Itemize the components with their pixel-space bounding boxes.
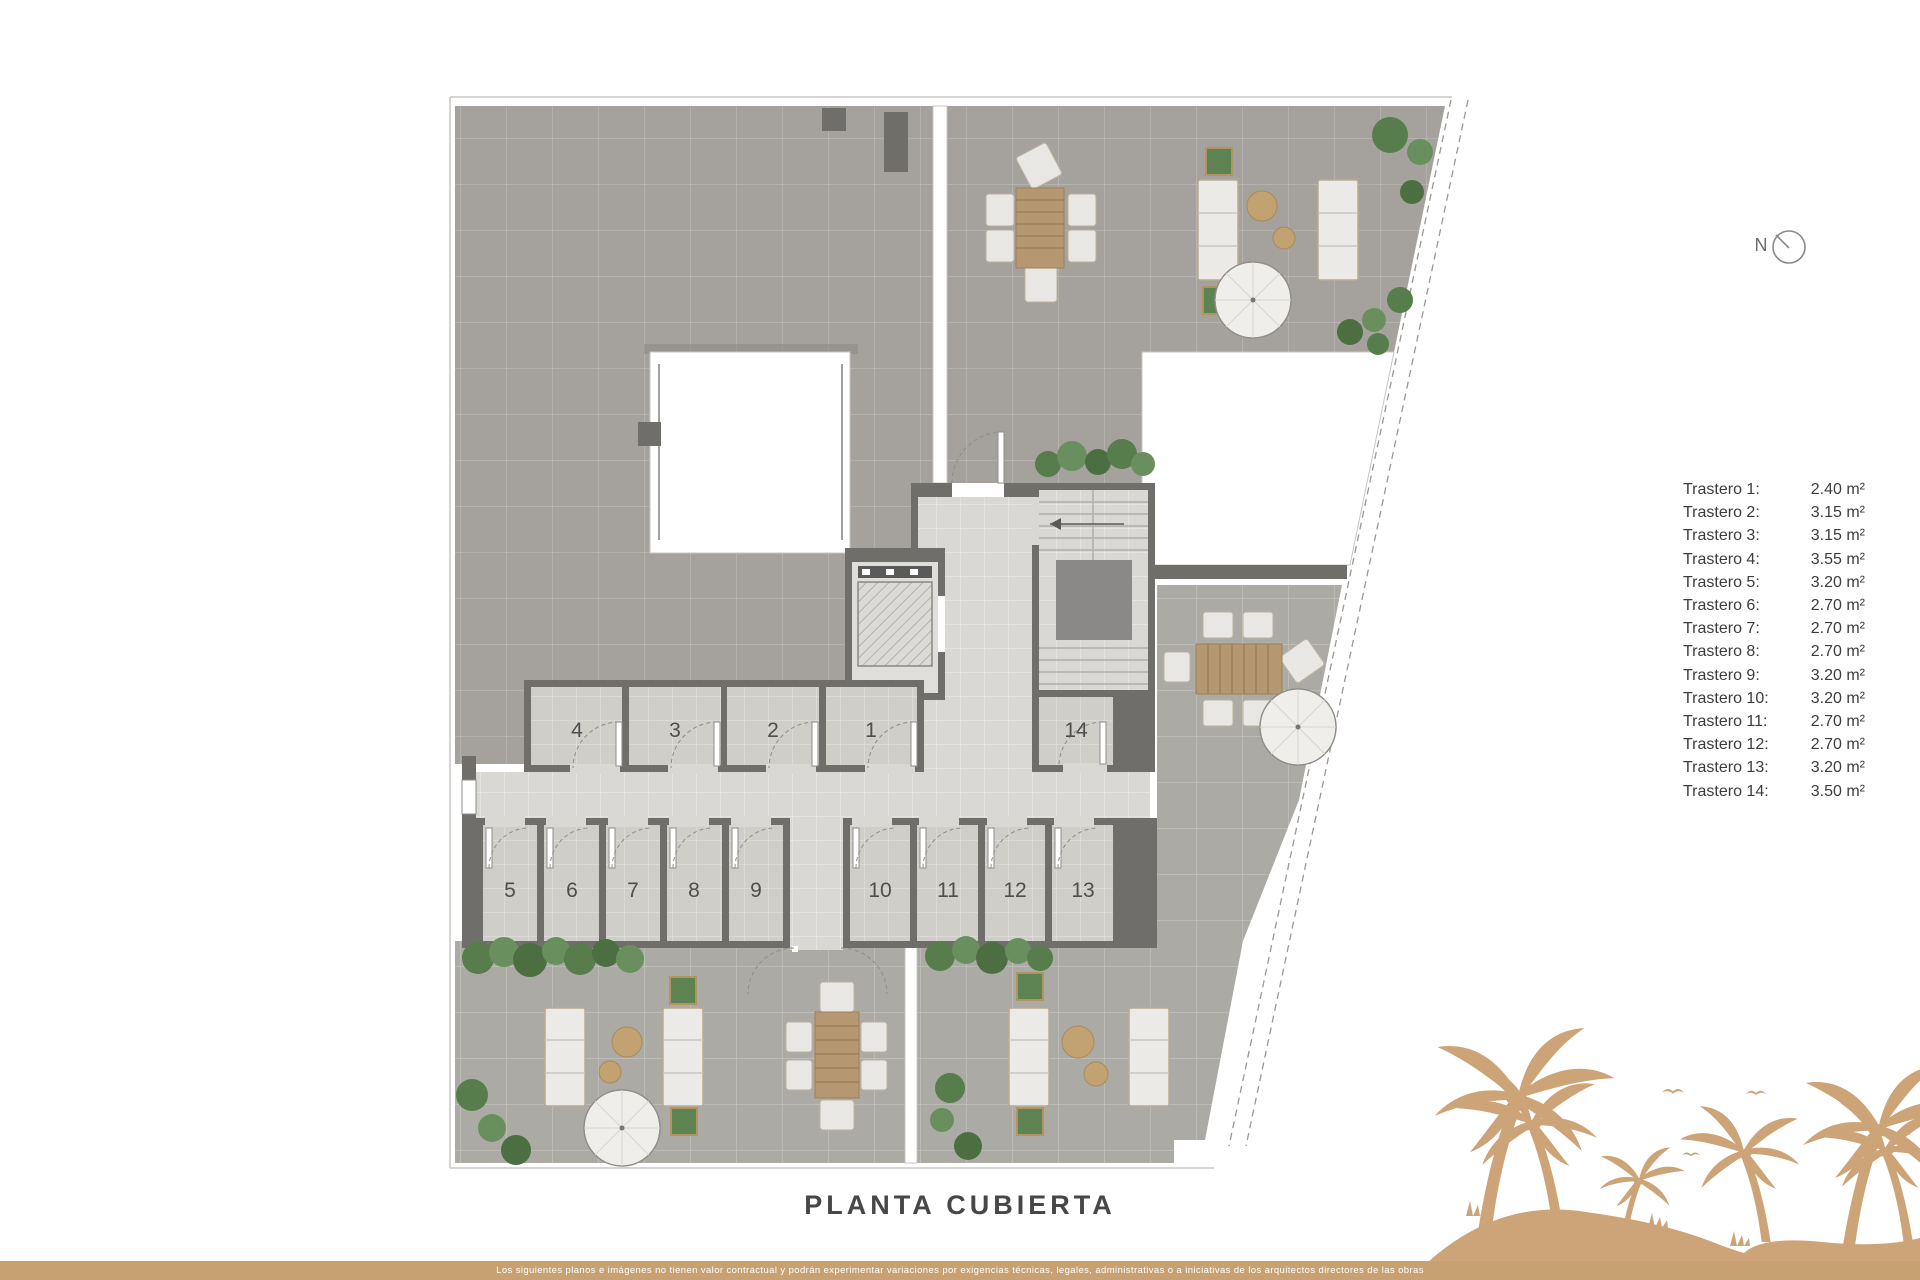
grass-tuft-icon: [1648, 1213, 1668, 1228]
room-label-8: 8: [688, 879, 700, 902]
compass-north-label: N: [1755, 235, 1768, 255]
legend-row: Trastero 10:3.20 m²: [1683, 687, 1865, 710]
stairwell: [1032, 483, 1155, 700]
parasol-umbrella: [1215, 262, 1291, 338]
legend-row: Trastero 11:2.70 m²: [1683, 710, 1865, 733]
floor-plan-drawing: 1 2 3 4 5 6 7 8 9 10 11 12 13 14: [0, 0, 1920, 1280]
legend-row: Trastero 14:3.50 m²: [1683, 780, 1865, 803]
legend-area: 3.15 m²: [1791, 501, 1865, 524]
footer-bar: Los siguientes planos e imágenes no tien…: [0, 1261, 1920, 1280]
palm-tree-icon: [1680, 1106, 1800, 1242]
room-label-4: 4: [571, 719, 583, 742]
room-label-5: 5: [504, 879, 516, 902]
parasol-umbrella: [1260, 689, 1336, 765]
legend-label: Trastero 14:: [1683, 780, 1791, 803]
legend-label: Trastero 8:: [1683, 640, 1791, 663]
room-label-7: 7: [627, 879, 639, 902]
legend-label: Trastero 3:: [1683, 524, 1791, 547]
room-label-14: 14: [1064, 719, 1088, 742]
side-table: [1247, 191, 1277, 221]
skylight-void-left: [638, 344, 858, 553]
legend-label: Trastero 11:: [1683, 710, 1791, 733]
bird-icon: [1682, 1152, 1700, 1156]
compass-needle-icon: [1776, 235, 1789, 248]
legend-area: 3.15 m²: [1791, 524, 1865, 547]
legend-label: Trastero 10:: [1683, 687, 1791, 710]
legend-row: Trastero 8:2.70 m²: [1683, 640, 1865, 663]
palm-tree-icon: [1820, 1103, 1920, 1242]
legend-row: Trastero 4:3.55 m²: [1683, 548, 1865, 571]
legend-label: Trastero 4:: [1683, 548, 1791, 571]
legend-area: 3.20 m²: [1791, 687, 1865, 710]
exit-corridor-floor: [790, 818, 843, 950]
room-label-2: 2: [767, 719, 779, 742]
storage-area-legend: Trastero 1:2.40 m² Trastero 2:3.15 m² Tr…: [1683, 478, 1865, 803]
page-title: PLANTA CUBIERTA: [640, 1190, 1280, 1221]
legend-area: 3.20 m²: [1791, 664, 1865, 687]
bird-icon: [1662, 1089, 1684, 1094]
legend-area: 3.55 m²: [1791, 548, 1865, 571]
void-upper-right: [1142, 352, 1394, 565]
legend-area: 2.70 m²: [1791, 640, 1865, 663]
legend-row: Trastero 7:2.70 m²: [1683, 617, 1865, 640]
legend-row: Trastero 2:3.15 m²: [1683, 501, 1865, 524]
storage-block-top: [524, 680, 924, 774]
room-label-11: 11: [937, 879, 959, 902]
legend-label: Trastero 7:: [1683, 617, 1791, 640]
footer-disclaimer: Los siguientes planos e imágenes no tien…: [0, 1261, 1920, 1276]
legend-label: Trastero 1:: [1683, 478, 1791, 501]
legend-area: 2.70 m²: [1791, 594, 1865, 617]
room-label-6: 6: [566, 879, 578, 902]
parasol-umbrella: [584, 1090, 660, 1166]
legend-area: 2.70 m²: [1791, 733, 1865, 756]
legend-label: Trastero 6:: [1683, 594, 1791, 617]
legend-row: Trastero 6:2.70 m²: [1683, 594, 1865, 617]
legend-area: 3.20 m²: [1791, 571, 1865, 594]
legend-row: Trastero 1:2.40 m²: [1683, 478, 1865, 501]
room-label-1: 1: [865, 719, 877, 742]
legend-area: 2.40 m²: [1791, 478, 1865, 501]
legend-row: Trastero 12:2.70 m²: [1683, 733, 1865, 756]
grass-tuft-icon: [1730, 1231, 1750, 1246]
legend-label: Trastero 13:: [1683, 756, 1791, 779]
floor-plan-page: 1 2 3 4 5 6 7 8 9 10 11 12 13 14: [0, 0, 1920, 1280]
legend-row: Trastero 9:3.20 m²: [1683, 664, 1865, 687]
legend-area: 2.70 m²: [1791, 617, 1865, 640]
corridor-end-door: [462, 780, 476, 814]
legend-label: Trastero 5:: [1683, 571, 1791, 594]
stair-landing: [1056, 560, 1132, 640]
legend-row: Trastero 3:3.15 m²: [1683, 524, 1865, 547]
bird-icon: [1746, 1091, 1766, 1095]
elevator: [845, 548, 945, 700]
legend-label: Trastero 2:: [1683, 501, 1791, 524]
room-label-3: 3: [669, 719, 681, 742]
legend-area: 3.50 m²: [1791, 780, 1865, 803]
palm-beach-graphic: [1428, 1028, 1920, 1262]
room-label-9: 9: [750, 879, 762, 902]
legend-area: 2.70 m²: [1791, 710, 1865, 733]
legend-area: 3.20 m²: [1791, 756, 1865, 779]
legend-label: Trastero 9:: [1683, 664, 1791, 687]
legend-row: Trastero 5:3.20 m²: [1683, 571, 1865, 594]
legend-row: Trastero 13:3.20 m²: [1683, 756, 1865, 779]
room-label-13: 13: [1071, 879, 1094, 902]
room-label-12: 12: [1003, 879, 1026, 902]
side-table: [1273, 227, 1295, 249]
north-compass: N: [1755, 231, 1806, 263]
room-label-10: 10: [868, 879, 891, 902]
corridor-floor: [476, 772, 1150, 818]
legend-label: Trastero 12:: [1683, 733, 1791, 756]
